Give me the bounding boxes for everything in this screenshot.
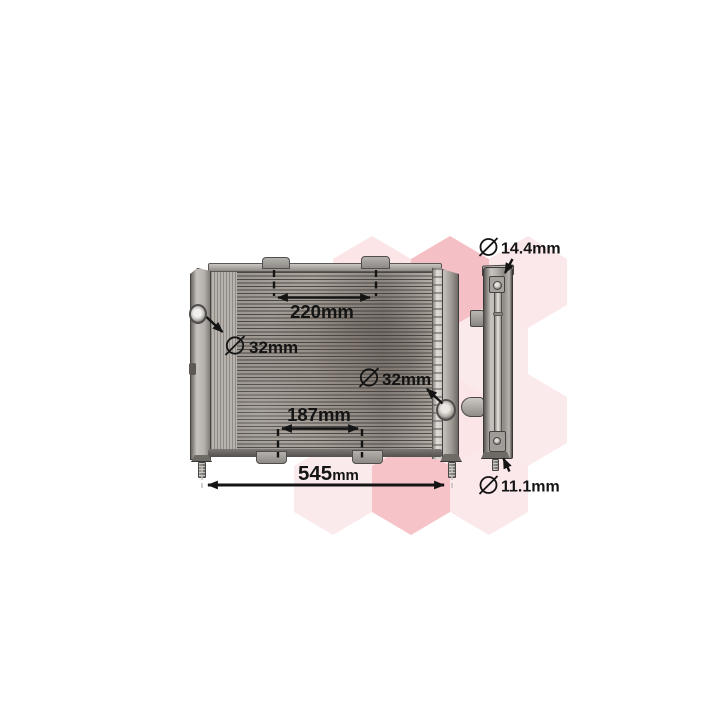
callout-arrow [207,317,223,332]
diameter-icon [480,476,498,494]
product-image-canvas: 220mm 32mm 32mm 187mm [0,0,720,720]
dim-187mm-label: 187mm [287,404,351,425]
callout-arrow [427,389,443,404]
callout-32mm-left [207,317,245,355]
callout-14-4mm-label: 14.4mm [501,241,561,258]
callout-11-1mm-label: 11.1mm [501,479,560,496]
diameter-icon [226,336,245,355]
callout-32mm-left-label: 32mm [249,338,298,357]
callout-arrow [505,259,513,273]
dim-220mm-label: 220mm [290,301,354,322]
dim-545mm-label: 545mm [298,462,359,485]
dim-545-unit: mm [332,467,359,484]
callout-arrow [504,459,510,472]
dim-220mm [274,270,376,298]
dimension-annotations: 220mm 32mm 32mm 187mm [0,0,720,720]
diameter-icon [360,368,379,387]
dim-187mm [278,429,362,458]
callout-32mm-right-label: 32mm [382,370,431,389]
diameter-icon [480,238,498,256]
dim-545-value: 545 [298,462,332,485]
